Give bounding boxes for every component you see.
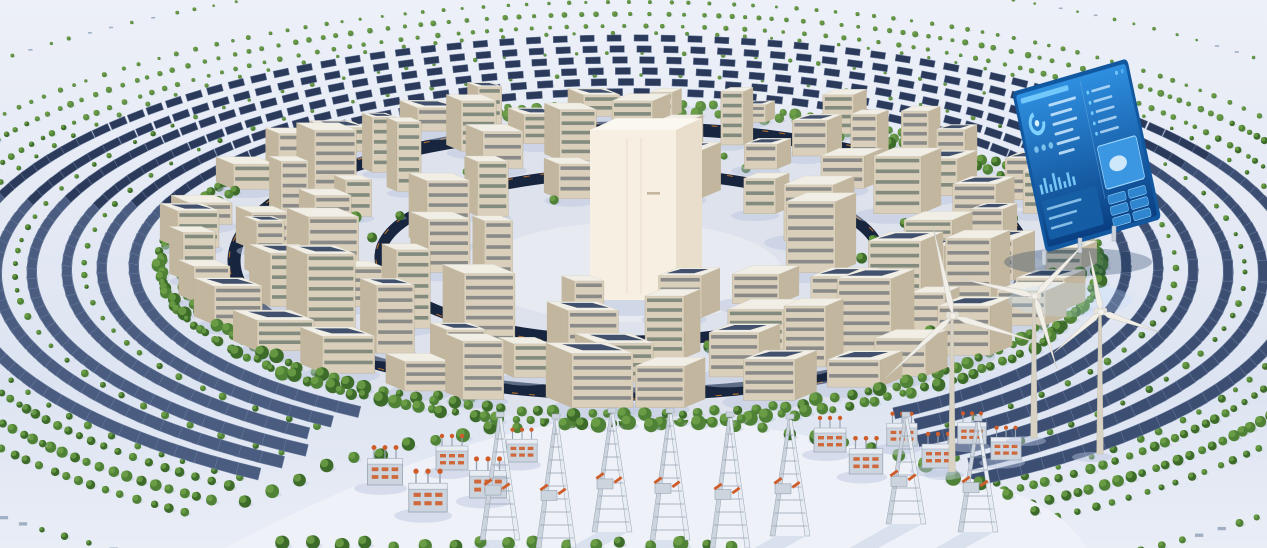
smart-city-illustration <box>0 0 1267 548</box>
screen-support-post <box>1042 250 1046 265</box>
city-core <box>151 82 1111 432</box>
screen-support-post <box>1112 226 1116 241</box>
scene-3d-render <box>0 0 1267 548</box>
center-tower-logo <box>647 192 660 195</box>
